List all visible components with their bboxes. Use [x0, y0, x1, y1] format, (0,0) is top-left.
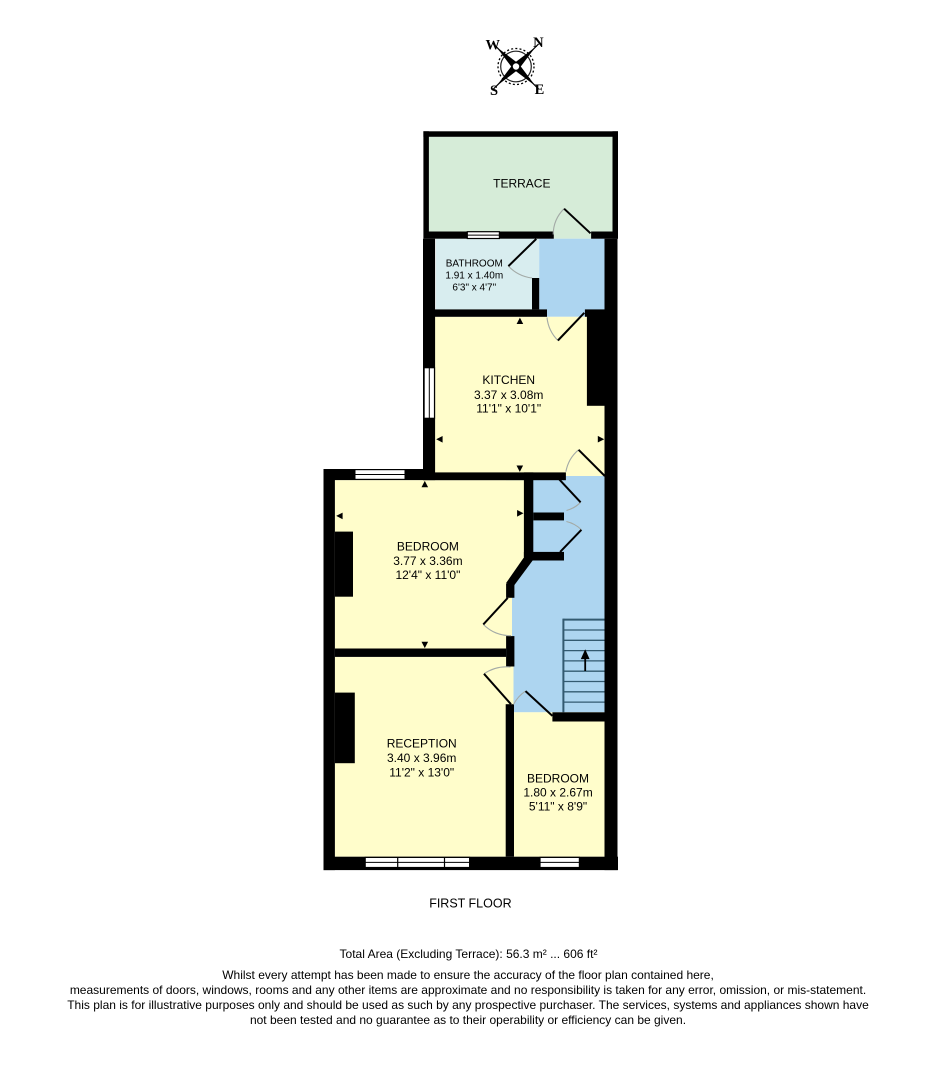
svg-text:12'4" x 11'0": 12'4" x 11'0" [395, 568, 460, 582]
svg-text:11'1" x 10'1": 11'1" x 10'1" [476, 401, 541, 415]
svg-text:measurements of doors, windows: measurements of doors, windows, rooms an… [70, 983, 866, 997]
svg-text:BEDROOM: BEDROOM [397, 540, 459, 554]
svg-text:Total Area (Excluding Terrace): Total Area (Excluding Terrace): 56.3 m² … [340, 947, 598, 961]
svg-text:FIRST FLOOR: FIRST FLOOR [429, 896, 511, 910]
svg-text:This plan is for illustrative: This plan is for illustrative purposes o… [67, 998, 869, 1012]
svg-text:3.77 x 3.36m: 3.77 x 3.36m [393, 554, 462, 568]
svg-text:Whilst every attempt has been: Whilst every attempt has been made to en… [222, 968, 714, 982]
svg-text:S: S [490, 83, 498, 99]
svg-text:RECEPTION: RECEPTION [387, 737, 457, 751]
svg-text:not been tested and no guarant: not been tested and no guarantee as to t… [250, 1013, 686, 1027]
svg-text:TERRACE: TERRACE [493, 176, 550, 190]
svg-text:1.91 x 1.40m: 1.91 x 1.40m [445, 271, 503, 282]
svg-text:BEDROOM: BEDROOM [527, 772, 589, 786]
svg-text:11'2" x 13'0": 11'2" x 13'0" [389, 765, 454, 779]
svg-text:E: E [535, 82, 545, 98]
svg-text:5'11" x 8'9": 5'11" x 8'9" [529, 800, 587, 814]
svg-text:BATHROOM: BATHROOM [446, 259, 503, 270]
svg-text:KITCHEN: KITCHEN [482, 373, 535, 387]
svg-text:N: N [533, 35, 544, 51]
svg-text:1.80 x 2.67m: 1.80 x 2.67m [523, 785, 592, 799]
svg-text:3.40 x 3.96m: 3.40 x 3.96m [387, 751, 456, 765]
svg-text:W: W [486, 38, 501, 54]
svg-text:3.37 x 3.08m: 3.37 x 3.08m [474, 388, 543, 402]
svg-text:6'3" x 4'7": 6'3" x 4'7" [452, 283, 496, 294]
